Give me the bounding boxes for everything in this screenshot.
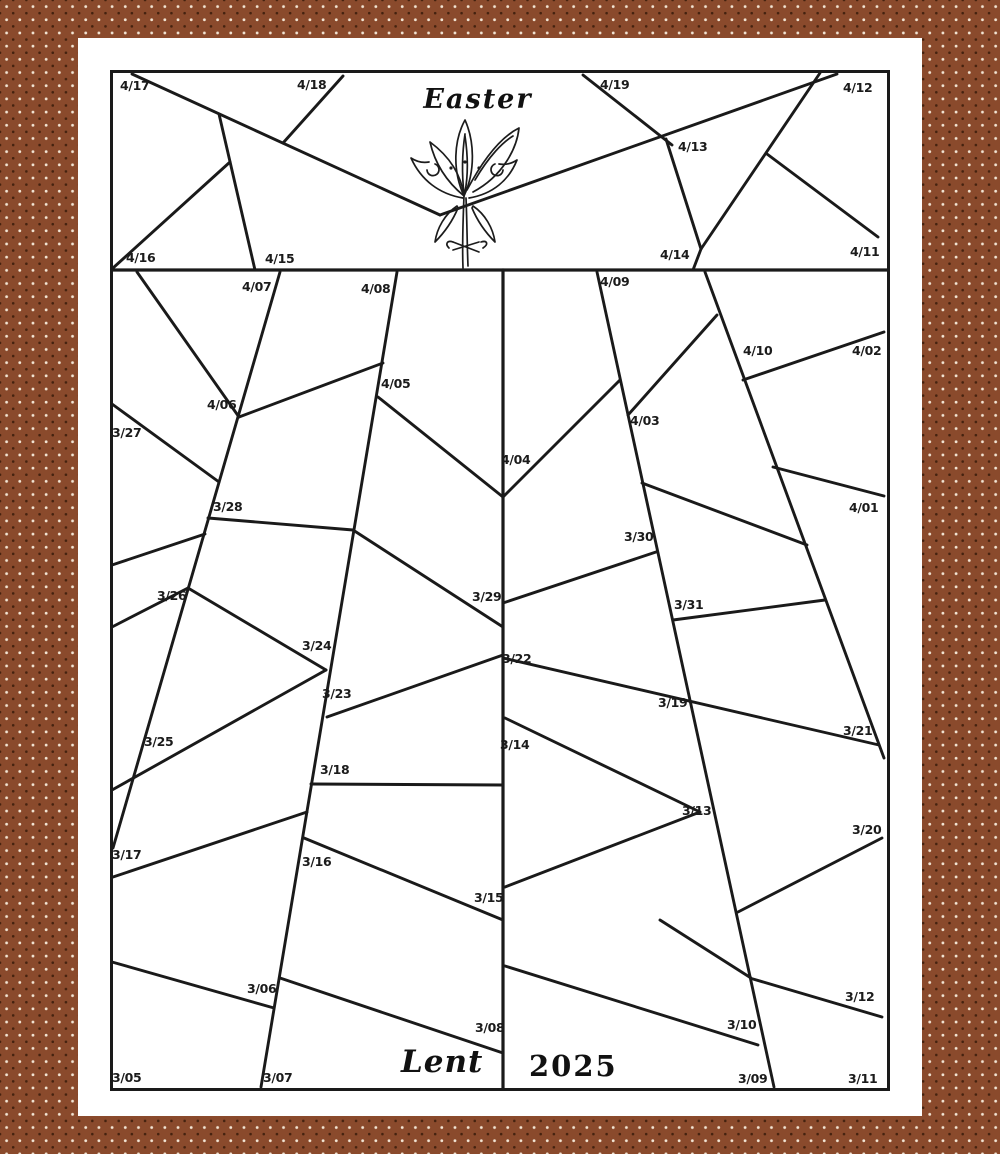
date-label: 3/30 <box>624 531 653 544</box>
date-label: 3/24 <box>302 640 331 653</box>
date-label: 4/10 <box>743 345 772 358</box>
date-label: 3/31 <box>674 599 703 612</box>
date-label: 3/29 <box>472 591 501 604</box>
date-label: 3/12 <box>845 991 874 1004</box>
date-label: 4/02 <box>852 345 881 358</box>
date-label: 4/15 <box>265 253 294 266</box>
date-label: 3/05 <box>112 1072 141 1085</box>
date-label: 4/14 <box>660 249 689 262</box>
date-label: 3/10 <box>727 1019 756 1032</box>
date-label: 3/26 <box>157 590 186 603</box>
date-label: 4/04 <box>501 454 530 467</box>
date-label: 3/17 <box>112 849 141 862</box>
date-label: 4/11 <box>850 246 879 259</box>
date-label: 4/07 <box>242 281 271 294</box>
easter-title: Easter <box>423 84 532 115</box>
date-label: 3/14 <box>500 739 529 752</box>
date-label: 4/08 <box>361 283 390 296</box>
date-label: 3/18 <box>320 764 349 777</box>
date-label: 3/09 <box>738 1073 767 1086</box>
date-label: 3/25 <box>144 736 173 749</box>
date-label: 3/16 <box>302 856 331 869</box>
date-label: 3/19 <box>658 697 687 710</box>
date-label: 4/16 <box>126 252 155 265</box>
year-title: 2025 <box>529 1049 618 1083</box>
lent-title: Lent <box>401 1044 483 1080</box>
date-label: 4/06 <box>207 399 236 412</box>
date-label: 3/21 <box>843 725 872 738</box>
coloring-page: 4/174/184/194/124/134/164/154/144/114/07… <box>0 0 1000 1154</box>
date-label: 4/09 <box>600 276 629 289</box>
date-label: 3/15 <box>474 892 503 905</box>
date-label: 3/28 <box>213 501 242 514</box>
date-label: 4/17 <box>120 80 149 93</box>
date-label: 4/12 <box>843 82 872 95</box>
date-labels-layer: 4/174/184/194/124/134/164/154/144/114/07… <box>0 0 1000 1154</box>
date-label: 4/05 <box>381 378 410 391</box>
date-label: 4/01 <box>849 502 878 515</box>
date-label: 3/20 <box>852 824 881 837</box>
date-label: 3/22 <box>502 653 531 666</box>
date-label: 3/23 <box>322 688 351 701</box>
date-label: 4/13 <box>678 141 707 154</box>
date-label: 4/03 <box>630 415 659 428</box>
date-label: 3/06 <box>247 983 276 996</box>
date-label: 3/08 <box>475 1022 504 1035</box>
date-label: 3/13 <box>682 805 711 818</box>
date-label: 3/07 <box>263 1072 292 1085</box>
date-label: 4/18 <box>297 79 326 92</box>
date-label: 4/19 <box>600 79 629 92</box>
date-label: 3/11 <box>848 1073 877 1086</box>
date-label: 3/27 <box>112 427 141 440</box>
